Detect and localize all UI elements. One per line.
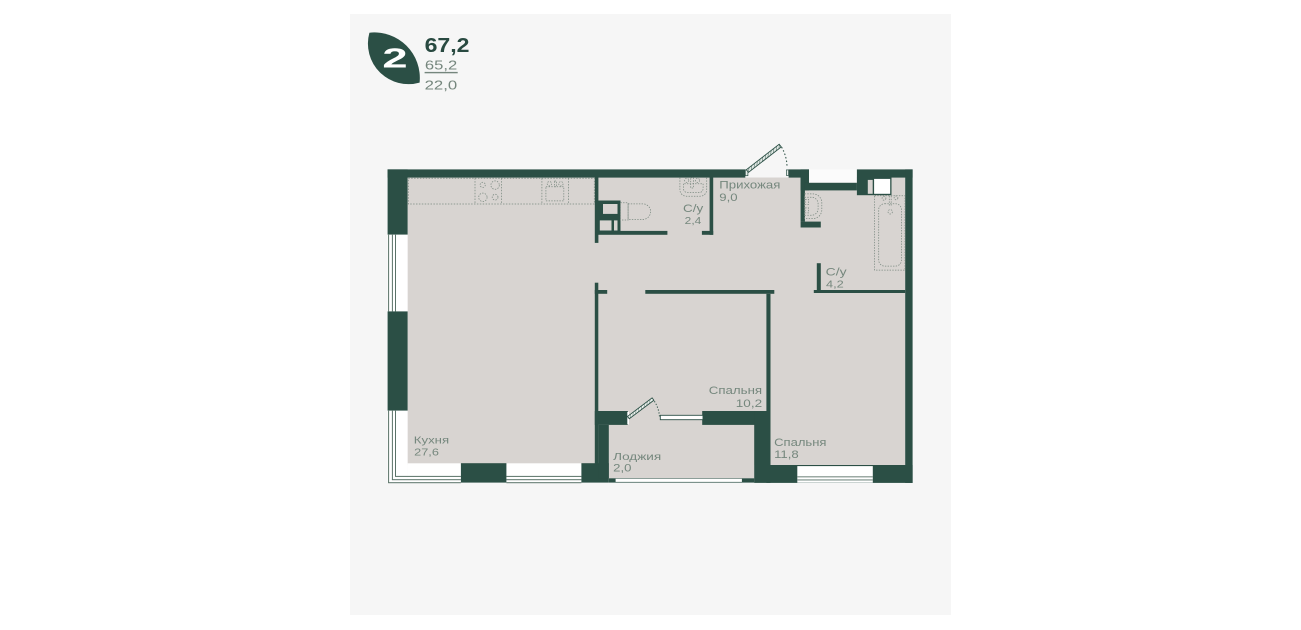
svg-text:Спальня: Спальня: [709, 385, 762, 397]
svg-text:Лоджия: Лоджия: [613, 451, 661, 463]
svg-text:27,6: 27,6: [414, 448, 439, 459]
svg-text:С/у: С/у: [826, 266, 848, 278]
svg-text:Кухня: Кухня: [414, 435, 449, 446]
svg-text:С/у: С/у: [683, 203, 704, 215]
svg-text:67,2: 67,2: [425, 34, 470, 57]
svg-text:Прихожая: Прихожая: [719, 180, 780, 192]
svg-text:9,0: 9,0: [719, 192, 737, 204]
svg-text:2,4: 2,4: [685, 215, 702, 227]
svg-text:65,2: 65,2: [425, 59, 457, 73]
svg-text:2,0: 2,0: [613, 462, 631, 474]
svg-text:Спальня: Спальня: [774, 437, 826, 449]
svg-text:11,8: 11,8: [774, 449, 799, 461]
svg-text:22,0: 22,0: [425, 78, 458, 92]
svg-text:10,2: 10,2: [736, 398, 762, 410]
svg-text:2: 2: [382, 42, 407, 73]
svg-text:4,2: 4,2: [826, 279, 844, 291]
